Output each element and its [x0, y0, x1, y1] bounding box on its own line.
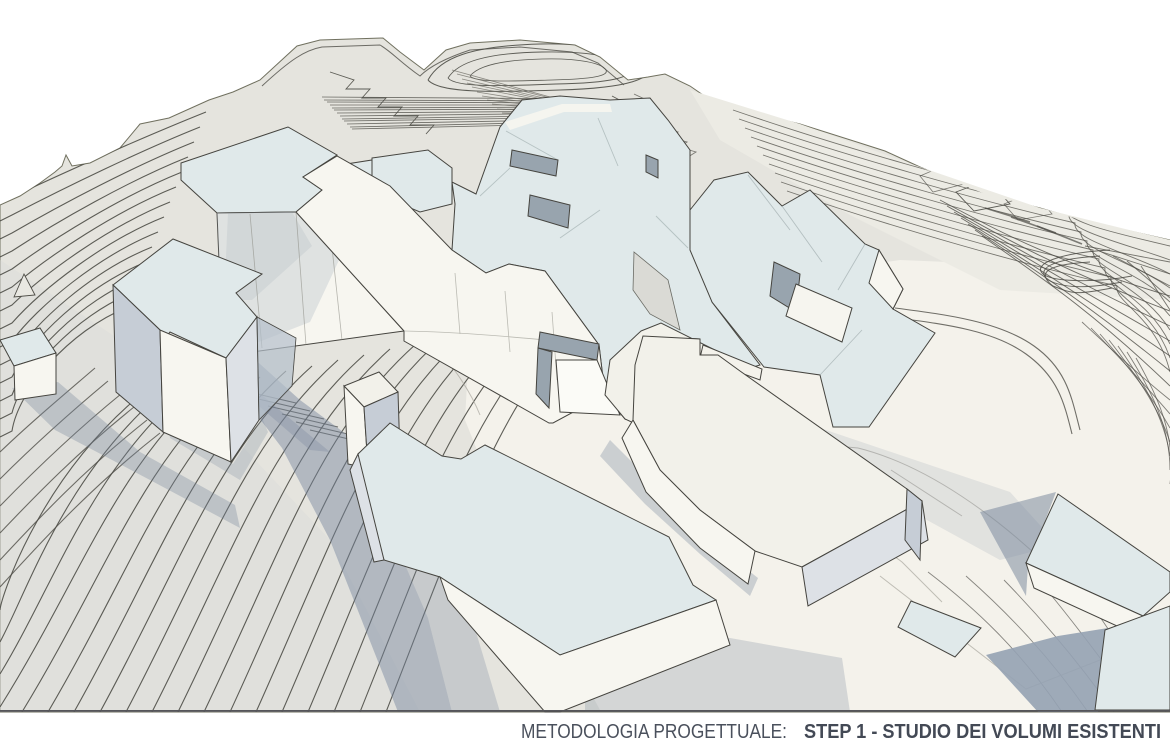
svg-text:METODOLOGIA PROGETTUALE:: METODOLOGIA PROGETTUALE: — [521, 720, 787, 743]
svg-text:STEP 1 - STUDIO DEI VOLUMI ESI: STEP 1 - STUDIO DEI VOLUMI ESISTENTI — [804, 720, 1161, 743]
